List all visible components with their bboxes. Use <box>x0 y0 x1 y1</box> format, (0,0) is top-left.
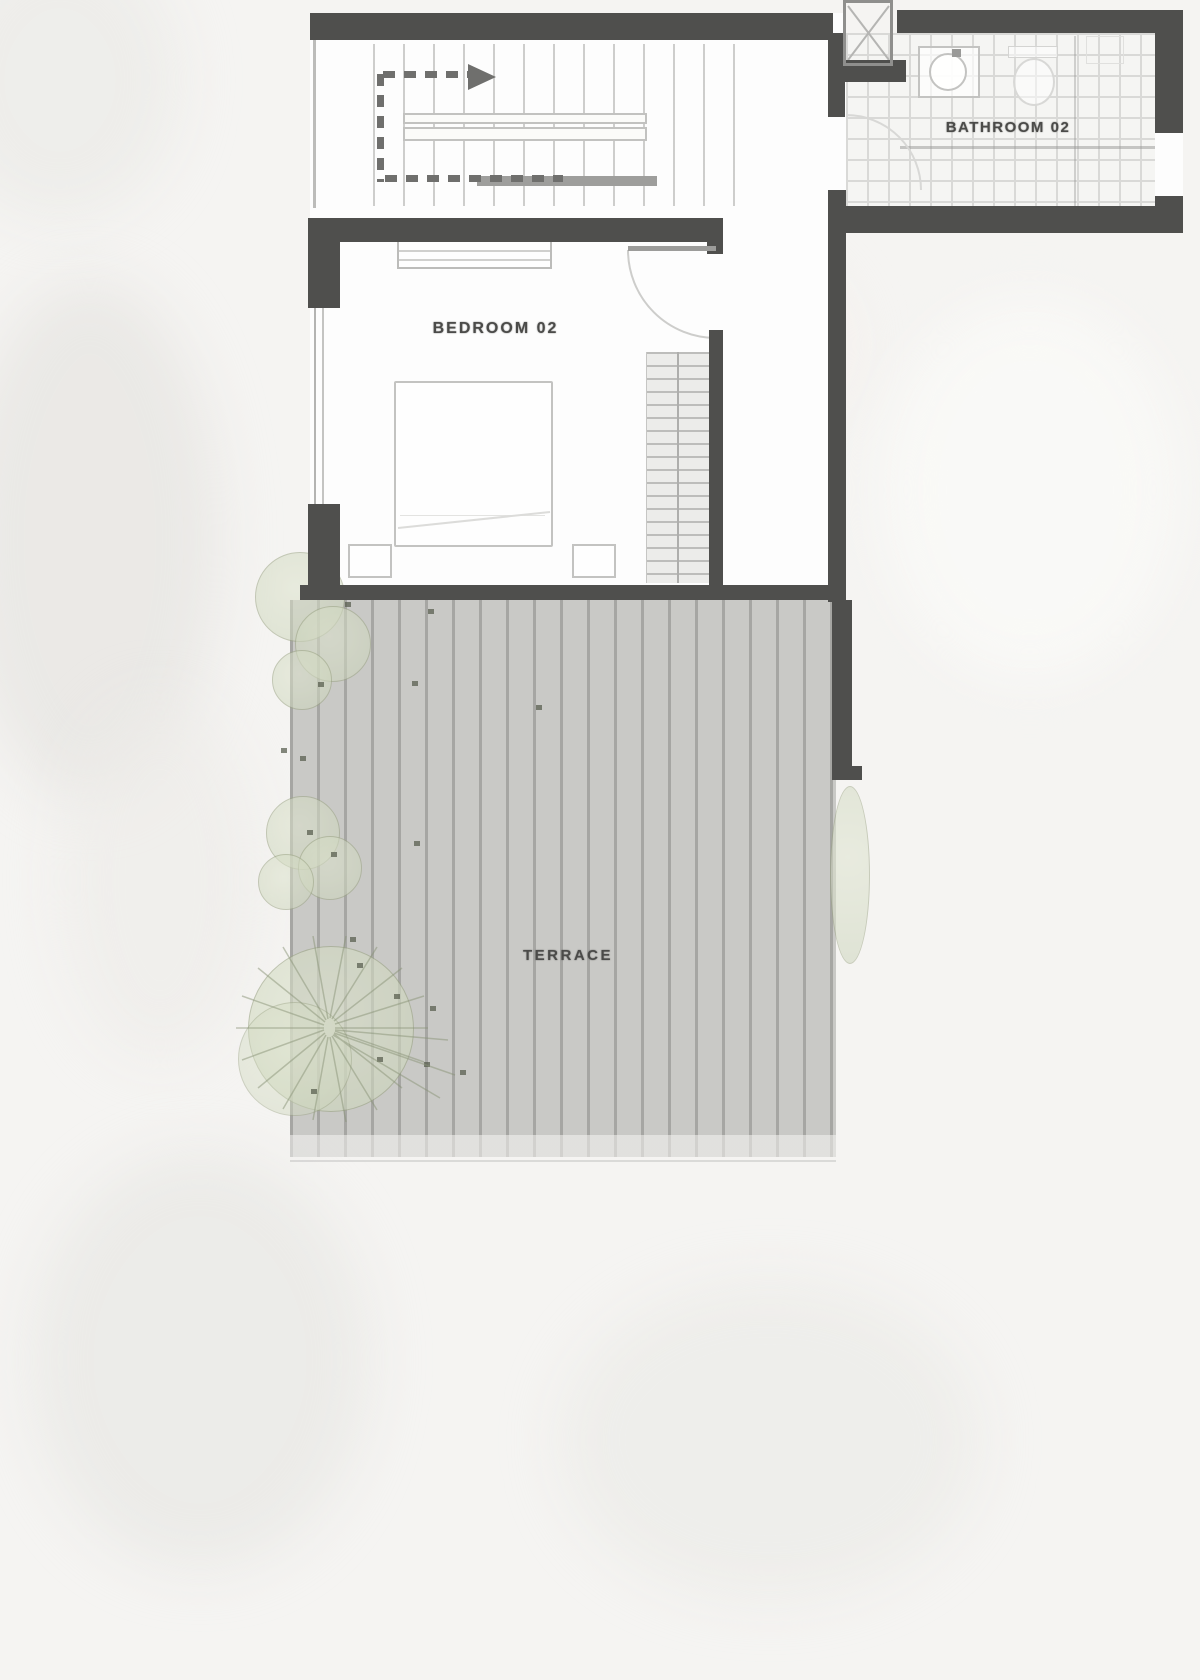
wall-right-main <box>828 190 846 602</box>
plant-dot <box>357 963 363 968</box>
plant-dot <box>424 1062 430 1067</box>
terrace-label: TERRACE <box>494 947 642 964</box>
wall-bedroom-top <box>308 218 709 242</box>
nightstand-left <box>348 544 392 578</box>
bedroom-window <box>314 307 316 505</box>
wardrobe-divider <box>677 352 679 583</box>
shrub-middle <box>258 854 314 910</box>
wall-bathroom-right-upper <box>1155 13 1183 133</box>
bedroom-door-leaf <box>628 246 716 251</box>
paper-texture-blob <box>880 300 1180 680</box>
stair-handrail-upper <box>403 113 647 124</box>
wall-bathroom-bottom <box>828 206 1183 233</box>
plant-dot <box>536 705 542 710</box>
bed-sheet-line <box>400 515 545 516</box>
sink-basin <box>929 53 967 91</box>
bed <box>394 381 553 547</box>
plant-dot <box>300 756 306 761</box>
stair-direction-dash-bottom <box>385 175 563 182</box>
shaft-vent <box>843 0 893 66</box>
plant-dot <box>460 1070 466 1075</box>
plant-dot <box>428 609 434 614</box>
plant-dot <box>394 994 400 999</box>
paper-texture-blob <box>60 700 260 1060</box>
plant-dot <box>281 748 287 753</box>
bathroom-accessory <box>1086 36 1124 64</box>
wall-bedroom-right <box>709 330 723 586</box>
paper-texture-blob <box>0 0 180 220</box>
wall-bathroom-top <box>897 10 1183 33</box>
shrub-upper <box>272 650 332 710</box>
terrace-edge-line <box>290 1160 836 1162</box>
plant-dot <box>377 1057 383 1062</box>
tree-crown-secondary <box>238 1002 352 1116</box>
toilet-cistern <box>1008 46 1058 58</box>
wall-terrace-right-foot <box>832 766 862 780</box>
shelf-line <box>399 259 550 261</box>
plant-dot <box>307 830 313 835</box>
stair-direction-dash-top <box>383 71 469 78</box>
paper-texture-blob <box>560 1280 980 1600</box>
floor-plan-canvas: BEDROOM 02 BATHROOM 02 TERRACE <box>0 0 1200 1680</box>
plant-dot <box>331 852 337 857</box>
bedroom-window <box>322 307 324 505</box>
bedroom-shelf <box>397 239 552 269</box>
plant-dot <box>414 841 420 846</box>
plant-dot <box>318 682 324 687</box>
plant-dot <box>430 1006 436 1011</box>
bathroom-label: BATHROOM 02 <box>908 119 1108 136</box>
shower-screen-line <box>900 146 1155 149</box>
stair-handrail-lower <box>403 127 647 141</box>
wall-terrace-right <box>832 600 852 780</box>
plant-dot <box>350 937 356 942</box>
stair-direction-arrow-icon <box>468 64 496 90</box>
sink-tap <box>952 49 961 57</box>
wall-bedroom-left-lower <box>308 504 340 586</box>
plant-dot <box>412 681 418 686</box>
wall-bedroom-left-upper <box>308 218 340 308</box>
shelf-line <box>399 250 550 252</box>
plant-dot <box>311 1089 317 1094</box>
terrace-deck-edge-band <box>290 1135 836 1157</box>
wall-top <box>310 13 833 40</box>
paper-texture-blob <box>30 1150 370 1570</box>
plant-dot <box>345 602 351 607</box>
stair-left-glass-line <box>313 40 316 208</box>
planting-strip-right <box>830 786 870 964</box>
bedroom-label: BEDROOM 02 <box>398 320 593 338</box>
wall-bottom <box>300 585 846 600</box>
toilet-bowl <box>1013 58 1055 106</box>
nightstand-right <box>572 544 616 578</box>
stair-direction-dash-left <box>377 74 384 182</box>
